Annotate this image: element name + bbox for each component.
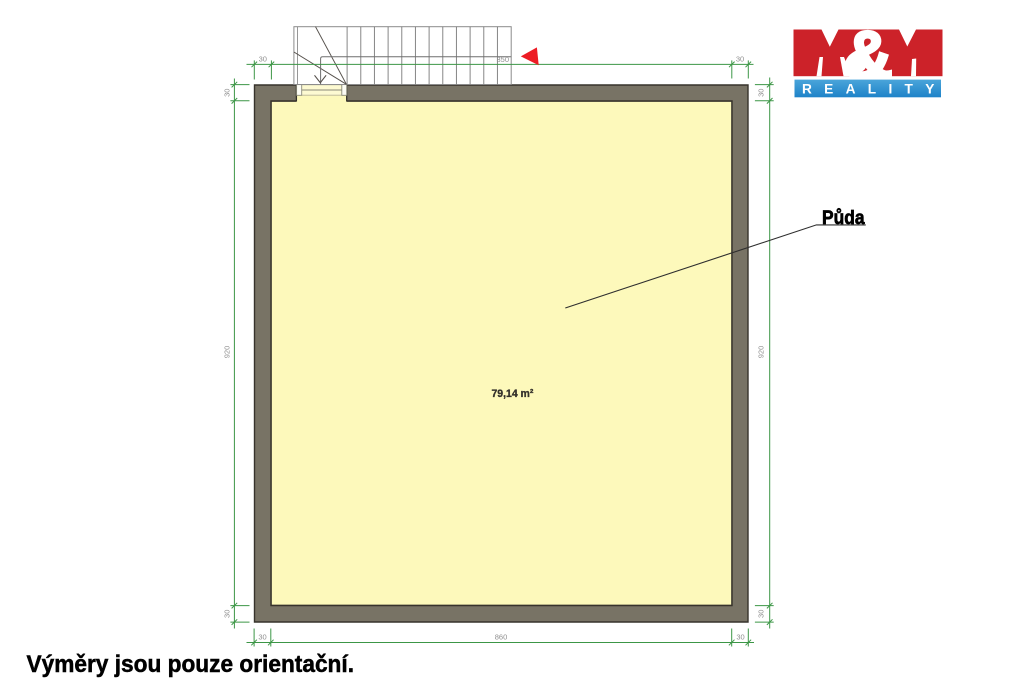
svg-text:REALITY: REALITY bbox=[802, 82, 947, 97]
svg-text:30: 30 bbox=[757, 610, 766, 618]
svg-text:79,14 m²: 79,14 m² bbox=[492, 388, 534, 400]
svg-text:30: 30 bbox=[736, 633, 744, 642]
svg-text:30: 30 bbox=[736, 55, 744, 64]
svg-text:30: 30 bbox=[259, 55, 267, 64]
svg-text:Půda: Půda bbox=[822, 207, 865, 229]
svg-text:860: 860 bbox=[495, 633, 508, 642]
svg-text:30: 30 bbox=[757, 89, 766, 97]
svg-text:Výměry jsou pouze orientační.: Výměry jsou pouze orientační. bbox=[27, 652, 355, 678]
svg-text:30: 30 bbox=[223, 89, 232, 97]
svg-text:350: 350 bbox=[496, 55, 509, 64]
svg-text:920: 920 bbox=[757, 346, 766, 359]
svg-text:920: 920 bbox=[223, 346, 232, 359]
svg-text:30: 30 bbox=[258, 633, 266, 642]
svg-text:30: 30 bbox=[223, 610, 232, 618]
